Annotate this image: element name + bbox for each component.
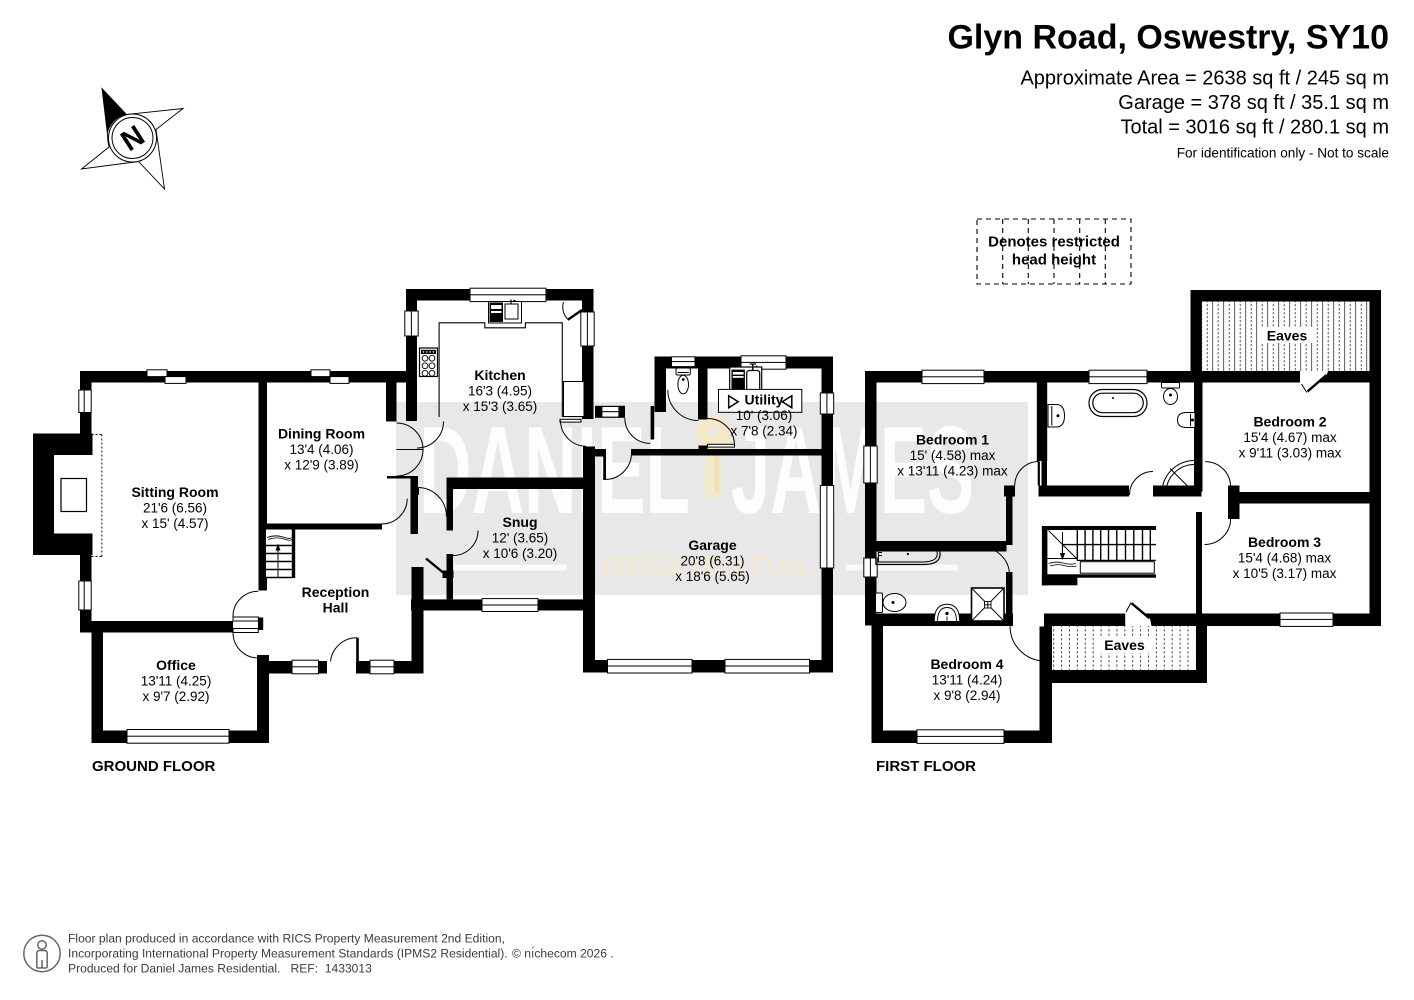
svg-text:DANIEL: DANIEL — [419, 402, 690, 540]
svg-text:Garage: Garage — [688, 537, 736, 553]
svg-text:x 13'11 (4.23) max: x 13'11 (4.23) max — [897, 464, 1008, 479]
svg-text:Dining Room: Dining Room — [278, 426, 365, 442]
svg-text:Kitchen: Kitchen — [474, 367, 525, 383]
svg-text:Eaves: Eaves — [1267, 328, 1308, 344]
svg-text:Sitting Room: Sitting Room — [131, 484, 218, 500]
svg-text:x 15'3 (3.65): x 15'3 (3.65) — [463, 399, 538, 414]
svg-text:x 9'7 (2.92): x 9'7 (2.92) — [142, 689, 209, 704]
svg-text:Floor plan produced in accorda: Floor plan produced in accordance with R… — [68, 932, 505, 946]
svg-text:GROUND FLOOR: GROUND FLOOR — [92, 758, 215, 775]
svg-text:x 18'6 (5.65): x 18'6 (5.65) — [675, 569, 750, 584]
svg-text:15'4 (4.67) max: 15'4 (4.67) max — [1243, 430, 1337, 445]
svg-text:13'11 (4.25): 13'11 (4.25) — [141, 674, 212, 689]
svg-text:Eaves: Eaves — [1104, 637, 1145, 653]
svg-text:Bedroom 2: Bedroom 2 — [1253, 414, 1326, 430]
svg-text:Bedroom 1: Bedroom 1 — [916, 432, 989, 448]
svg-text:Incorporating International Pr: Incorporating International Property Mea… — [68, 947, 508, 961]
svg-text:head height: head height — [1012, 252, 1096, 269]
svg-text:15'4 (4.68) max: 15'4 (4.68) max — [1238, 551, 1332, 566]
svg-text:Denotes restricted: Denotes restricted — [988, 234, 1120, 251]
svg-text:Garage = 378 sq ft / 35.1 sq m: Garage = 378 sq ft / 35.1 sq m — [1118, 92, 1389, 114]
svg-text:13'4 (4.06): 13'4 (4.06) — [289, 442, 353, 457]
svg-text:x 15' (4.57): x 15' (4.57) — [141, 516, 208, 531]
svg-text:10' (3.06): 10' (3.06) — [736, 408, 793, 423]
svg-text:Bedroom 3: Bedroom 3 — [1248, 534, 1321, 550]
svg-text:13'11 (4.24): 13'11 (4.24) — [932, 673, 1003, 688]
svg-text:x 9'8 (2.94): x 9'8 (2.94) — [933, 688, 1000, 703]
svg-text:x 9'11 (3.03) max: x 9'11 (3.03) max — [1239, 446, 1342, 461]
svg-text:Bedroom 4: Bedroom 4 — [930, 656, 1003, 672]
svg-text:Produced for Daniel James Resi: Produced for Daniel James Residential. R… — [68, 962, 372, 976]
svg-text:FIRST FLOOR: FIRST FLOOR — [876, 758, 976, 775]
svg-text:Approximate Area = 2638 sq ft: Approximate Area = 2638 sq ft / 245 sq m — [1020, 68, 1389, 90]
svg-text:16'3 (4.95): 16'3 (4.95) — [468, 384, 532, 399]
svg-text:x 12'9 (3.89): x 12'9 (3.89) — [284, 458, 359, 473]
svg-text:Glyn Road, Oswestry, SY10: Glyn Road, Oswestry, SY10 — [947, 19, 1389, 57]
svg-text:Office: Office — [156, 657, 196, 673]
svg-text:21'6 (6.56): 21'6 (6.56) — [143, 501, 207, 516]
svg-text:Reception: Reception — [302, 584, 370, 600]
svg-text:x 10'6 (3.20): x 10'6 (3.20) — [483, 546, 558, 561]
svg-text:© nı́checom 2026 .: © nı́checom 2026 . — [512, 946, 614, 961]
svg-text:Utility: Utility — [745, 392, 784, 408]
svg-text:For identification only - Not: For identification only - Not to scale — [1177, 146, 1389, 161]
svg-text:Snug: Snug — [503, 514, 538, 530]
svg-text:15' (4.58) max: 15' (4.58) max — [910, 448, 996, 463]
svg-text:Hall: Hall — [323, 600, 349, 616]
svg-text:20'8 (6.31): 20'8 (6.31) — [680, 554, 744, 569]
svg-text:x 10'5 (3.17) max: x 10'5 (3.17) max — [1233, 566, 1337, 581]
svg-text:Total = 3016 sq ft / 280.1 sq: Total = 3016 sq ft / 280.1 sq m — [1121, 117, 1390, 139]
svg-text:12' (3.65): 12' (3.65) — [492, 531, 549, 546]
svg-text:x 7'8 (2.34): x 7'8 (2.34) — [730, 424, 797, 439]
